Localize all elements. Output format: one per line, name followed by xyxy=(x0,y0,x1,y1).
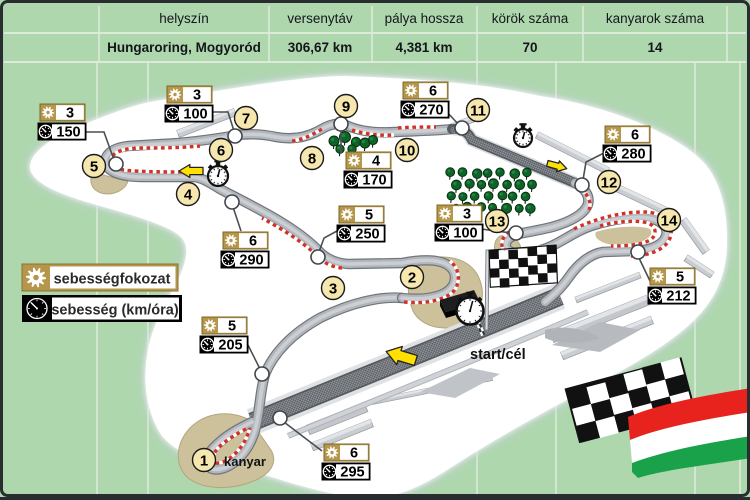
svg-text:5: 5 xyxy=(90,159,98,176)
svg-text:3: 3 xyxy=(66,106,74,122)
svg-text:1: 1 xyxy=(200,453,208,470)
svg-text:100: 100 xyxy=(453,226,477,242)
svg-text:5: 5 xyxy=(228,319,236,335)
svg-text:14: 14 xyxy=(647,40,663,55)
svg-text:6: 6 xyxy=(429,84,437,100)
svg-text:170: 170 xyxy=(362,173,386,189)
svg-text:3: 3 xyxy=(329,281,337,298)
svg-text:6: 6 xyxy=(249,234,257,250)
svg-text:13: 13 xyxy=(489,214,506,231)
svg-text:4,381 km: 4,381 km xyxy=(395,40,452,55)
svg-text:6: 6 xyxy=(631,128,639,144)
svg-text:sebességfokozat: sebességfokozat xyxy=(54,272,171,288)
svg-text:9: 9 xyxy=(342,99,350,116)
svg-text:start/cél: start/cél xyxy=(470,347,526,363)
svg-text:5: 5 xyxy=(365,208,373,224)
svg-text:12: 12 xyxy=(601,175,618,192)
svg-text:8: 8 xyxy=(308,151,316,168)
svg-text:kanyar: kanyar xyxy=(224,454,266,469)
svg-text:10: 10 xyxy=(399,143,416,160)
svg-text:4: 4 xyxy=(372,154,380,170)
svg-text:270: 270 xyxy=(419,103,443,119)
svg-text:100: 100 xyxy=(183,107,207,123)
svg-text:306,67 km: 306,67 km xyxy=(288,40,353,55)
svg-text:14: 14 xyxy=(661,213,678,230)
svg-text:295: 295 xyxy=(340,465,364,481)
svg-text:Hungaroring, Mogyoród: Hungaroring, Mogyoród xyxy=(107,40,261,55)
svg-text:3: 3 xyxy=(463,207,471,223)
svg-text:250: 250 xyxy=(355,227,379,243)
svg-text:150: 150 xyxy=(56,125,80,141)
svg-text:6: 6 xyxy=(217,143,225,160)
svg-text:70: 70 xyxy=(522,40,537,55)
svg-text:pálya hossza: pálya hossza xyxy=(385,11,464,26)
svg-text:4: 4 xyxy=(184,187,193,204)
svg-text:körök száma: körök száma xyxy=(492,11,569,26)
svg-text:sebesség (km/óra): sebesség (km/óra) xyxy=(51,303,179,319)
svg-text:11: 11 xyxy=(470,103,486,120)
svg-text:6: 6 xyxy=(350,446,358,462)
svg-text:2: 2 xyxy=(408,270,416,287)
svg-text:290: 290 xyxy=(239,253,263,269)
svg-text:kanyarok száma: kanyarok száma xyxy=(606,11,705,26)
svg-text:205: 205 xyxy=(218,338,242,354)
svg-text:280: 280 xyxy=(621,147,645,163)
svg-text:7: 7 xyxy=(242,111,250,128)
svg-text:5: 5 xyxy=(676,270,684,286)
svg-text:3: 3 xyxy=(193,88,201,104)
svg-text:212: 212 xyxy=(666,289,690,305)
svg-text:versenytáv: versenytáv xyxy=(287,11,353,26)
svg-text:helyszín: helyszín xyxy=(159,11,209,26)
